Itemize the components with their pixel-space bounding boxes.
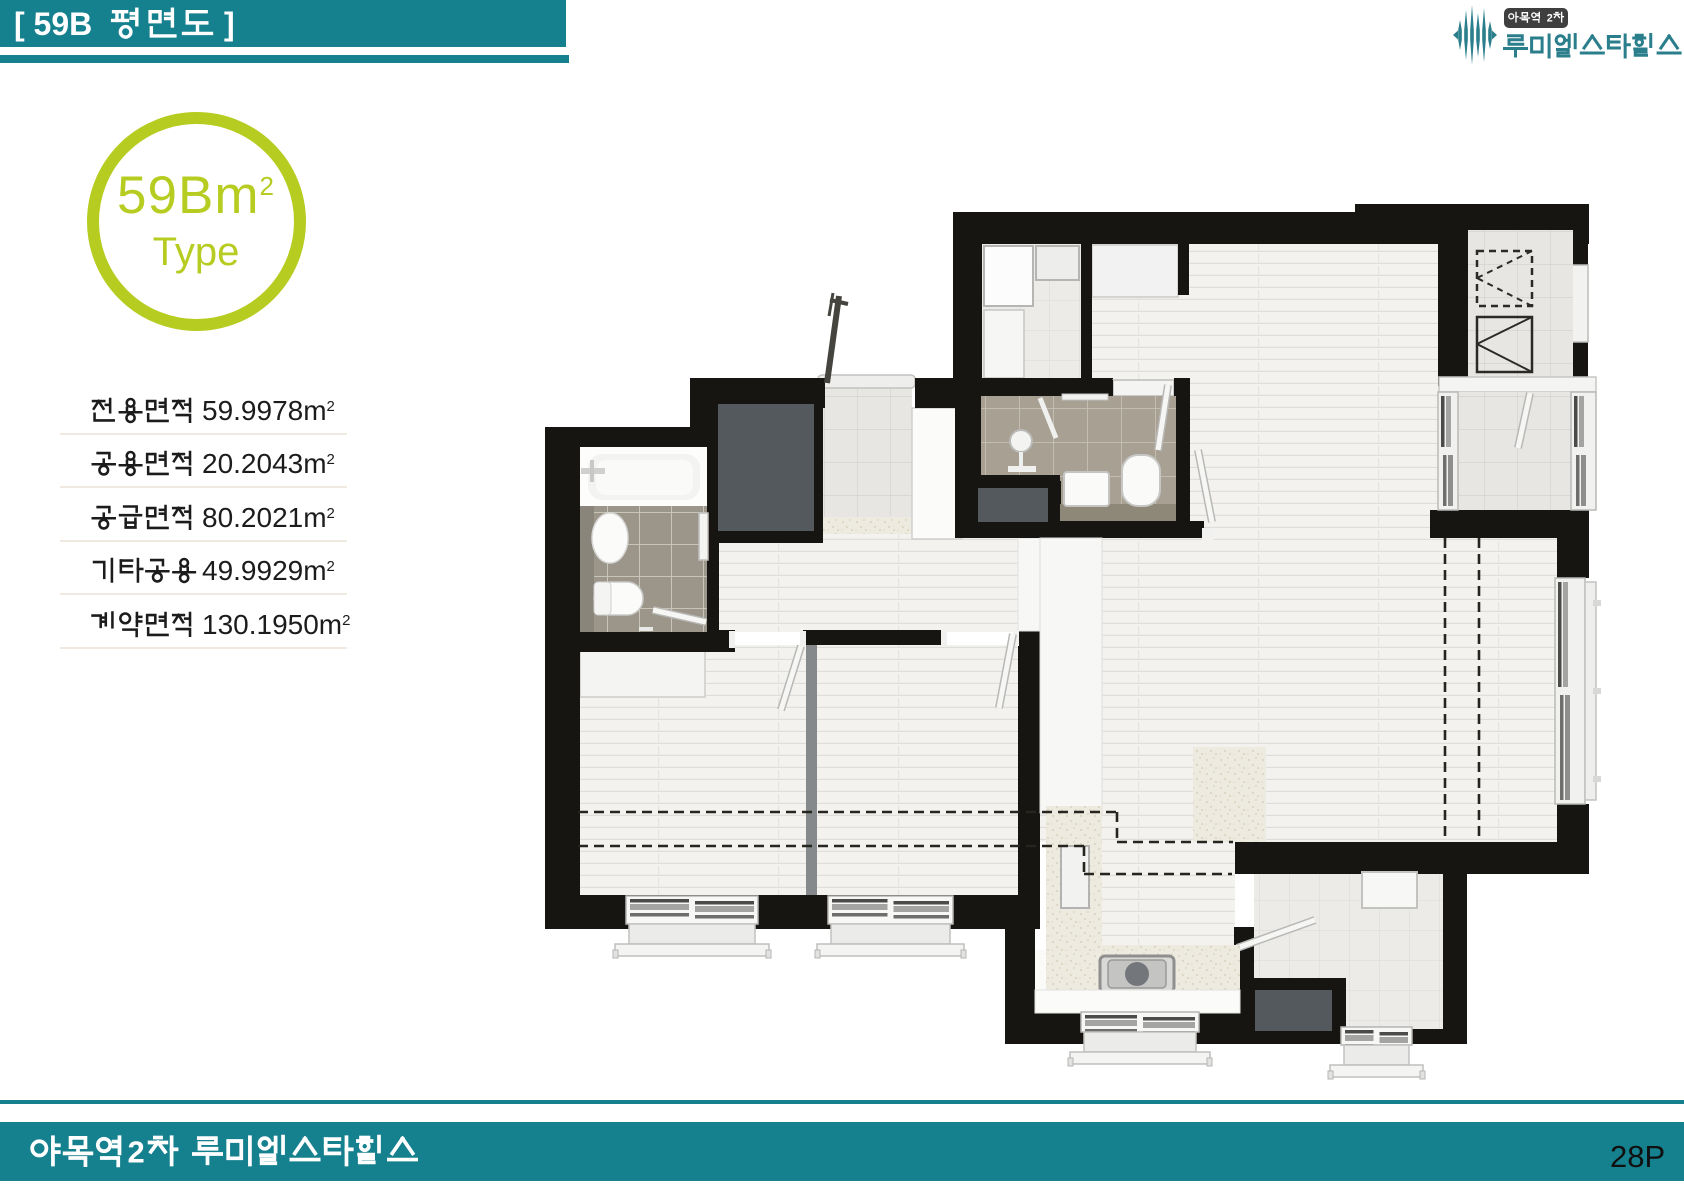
- svg-text:2: 2: [128, 1135, 145, 1170]
